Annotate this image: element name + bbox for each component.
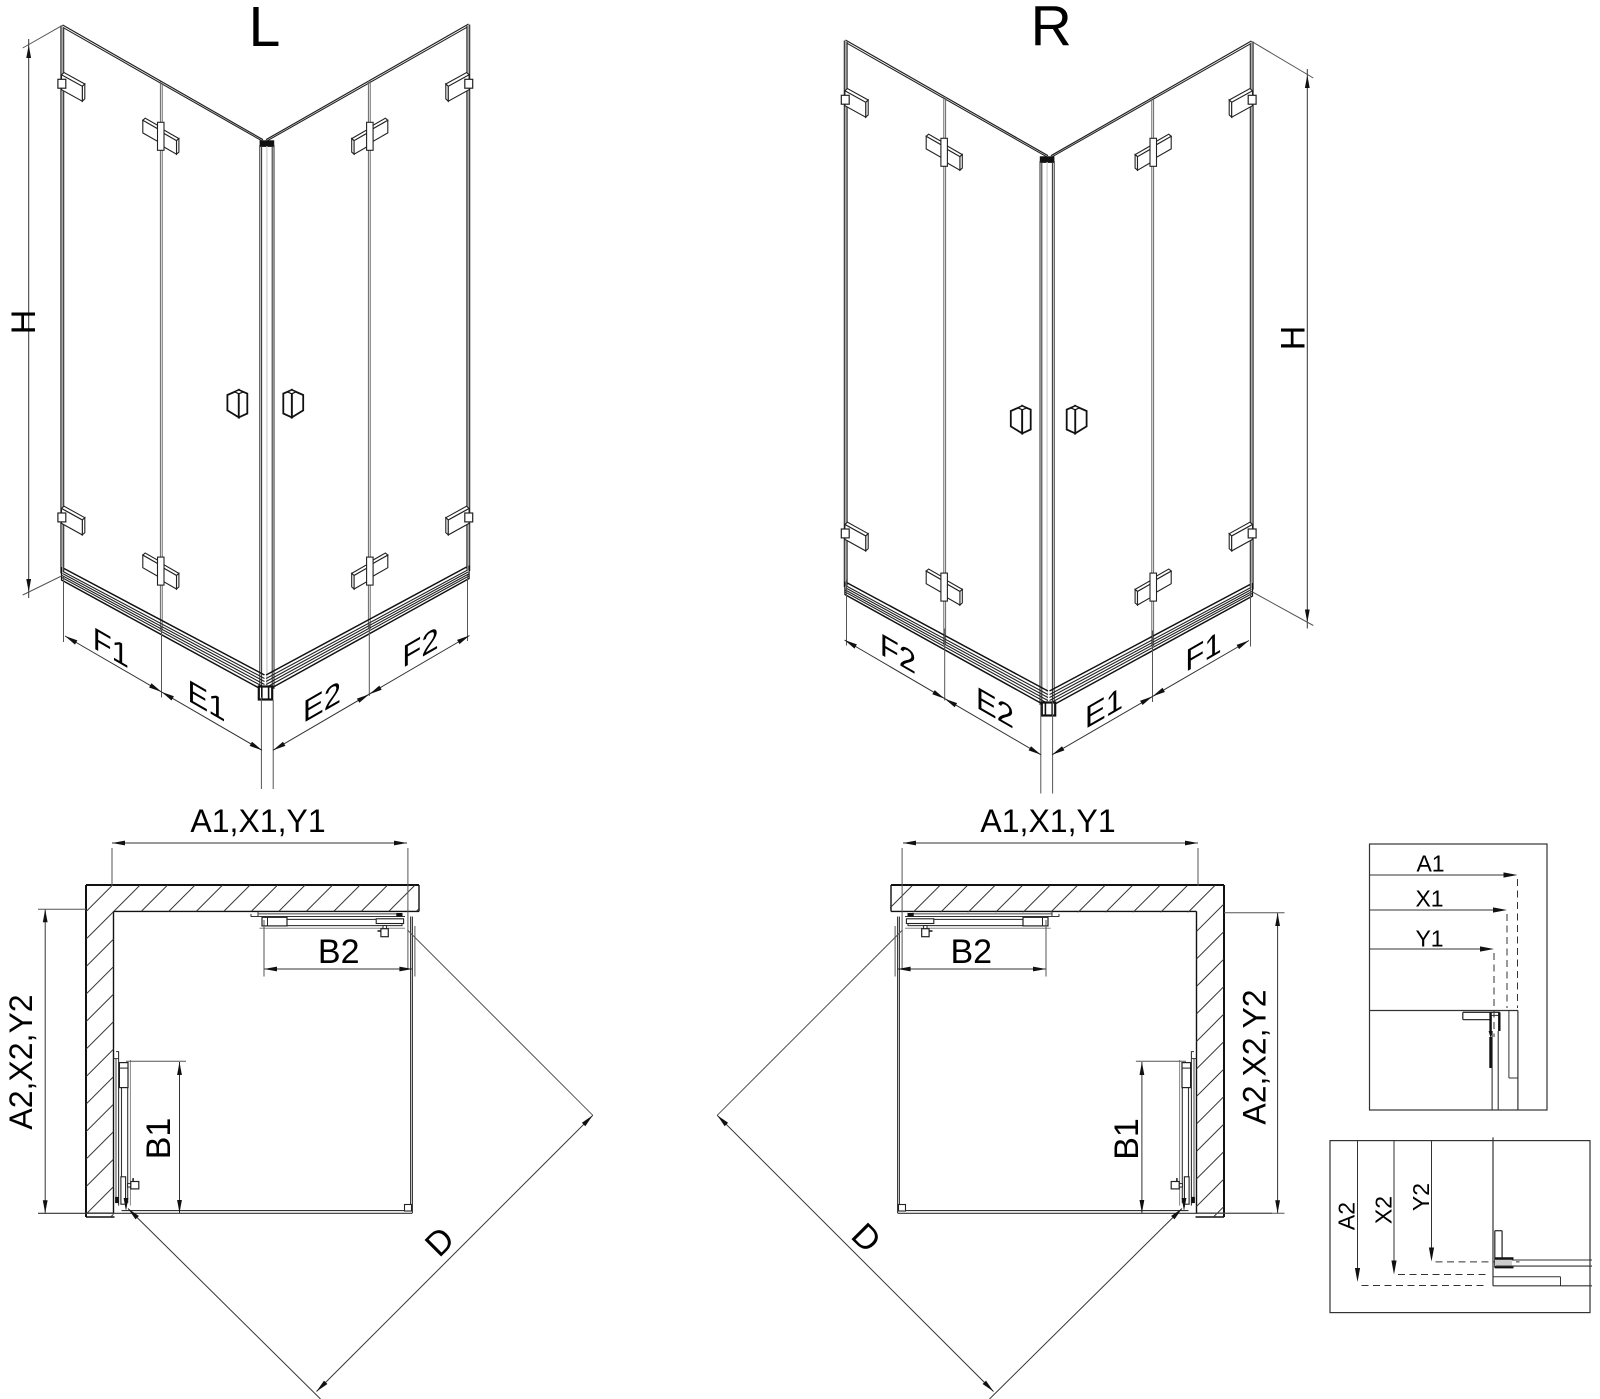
svg-text:Y2: Y2 xyxy=(1408,1183,1434,1211)
svg-text:H: H xyxy=(1274,326,1312,351)
svg-text:B1: B1 xyxy=(1108,1118,1146,1160)
svg-text:A2,X2,Y2: A2,X2,Y2 xyxy=(1237,989,1273,1124)
svg-text:A1,X1,Y1: A1,X1,Y1 xyxy=(980,803,1115,839)
svg-text:A2: A2 xyxy=(1333,1202,1359,1230)
svg-text:B2: B2 xyxy=(951,933,993,971)
svg-text:H: H xyxy=(5,310,43,335)
svg-text:Y1: Y1 xyxy=(1415,925,1443,951)
svg-text:B1: B1 xyxy=(140,1118,178,1160)
svg-text:A1: A1 xyxy=(1416,850,1444,876)
svg-text:X2: X2 xyxy=(1370,1196,1396,1224)
svg-text:L: L xyxy=(249,0,281,59)
svg-text:B2: B2 xyxy=(318,933,360,971)
svg-text:A2,X2,Y2: A2,X2,Y2 xyxy=(3,994,39,1129)
svg-text:X1: X1 xyxy=(1415,885,1443,911)
svg-text:R: R xyxy=(1031,0,1072,58)
svg-text:A1,X1,Y1: A1,X1,Y1 xyxy=(190,803,325,839)
